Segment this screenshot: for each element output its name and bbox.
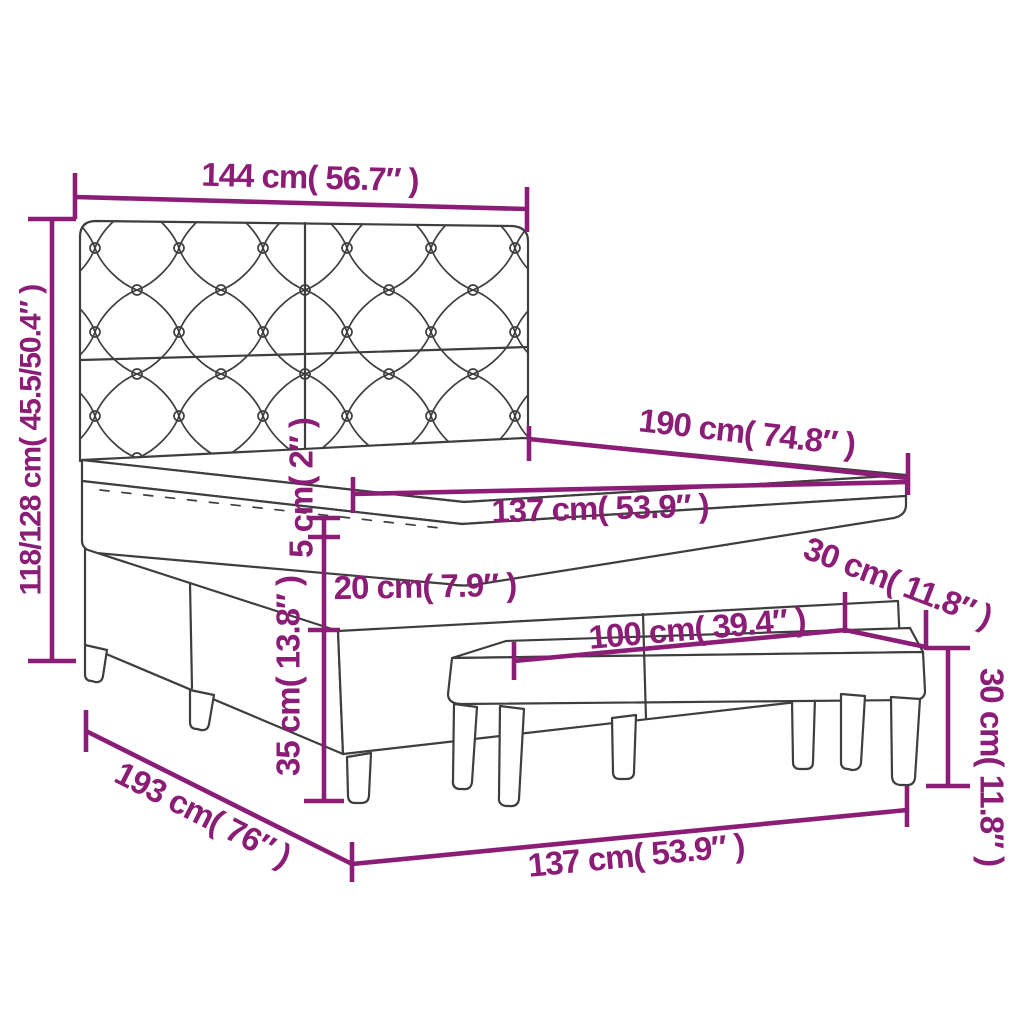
dim-label-topper-thickness: 5 cm( 2″ ) [283,418,320,558]
dim-label-bench-height: 30 cm( 11.8″ ) [974,668,1011,866]
dim-label-mattress-thickness: 20 cm( 7.9″ ) [333,566,516,606]
dim-label-headboard-width: 144 cm( 56.7″ ) [201,156,419,199]
dim-label-mattress-width: 137 cm( 53.9″ ) [491,487,709,530]
diagram-canvas: 144 cm( 56.7″ ) 118/128 cm( 45.5/50.4″ )… [0,0,1024,1024]
bed-dimension-diagram: 144 cm( 56.7″ ) 118/128 cm( 45.5/50.4″ )… [0,0,1024,1024]
dim-label-overall-height: 118/128 cm( 45.5/50.4″ ) [15,285,48,596]
dim-label-base-height: 35 cm( 13.8″ ) [270,576,307,776]
